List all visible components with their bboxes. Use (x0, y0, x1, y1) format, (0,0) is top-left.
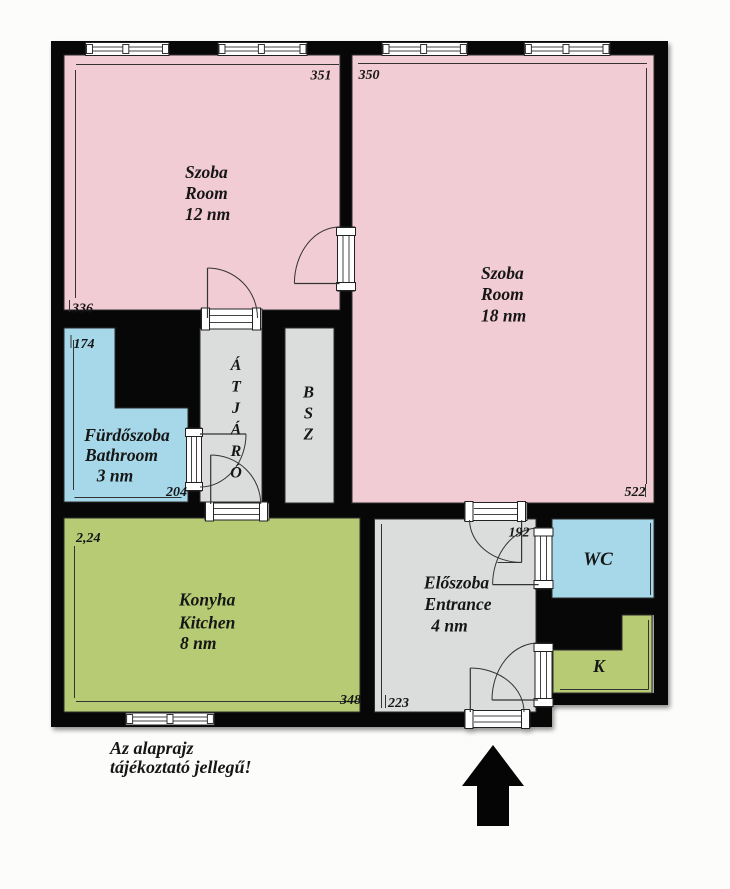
svg-text:192: 192 (509, 526, 530, 541)
svg-text:336: 336 (71, 302, 93, 317)
svg-text:351: 351 (310, 69, 332, 84)
svg-text:K: K (592, 656, 606, 676)
svg-text:SzobaRoom18 nm: SzobaRoom18 nm (480, 263, 526, 326)
svg-text:WC: WC (583, 549, 613, 570)
svg-text:204: 204 (165, 485, 187, 500)
svg-text:348: 348 (339, 693, 361, 708)
svg-text:2,24: 2,24 (75, 531, 101, 546)
svg-text:174: 174 (74, 337, 95, 352)
svg-text:223: 223 (387, 696, 409, 711)
svg-text:522: 522 (625, 485, 646, 500)
svg-text:350: 350 (358, 68, 380, 83)
svg-text:BSZ: BSZ (302, 383, 314, 444)
svg-text:SzobaRoom12 nm: SzobaRoom12 nm (184, 162, 230, 224)
